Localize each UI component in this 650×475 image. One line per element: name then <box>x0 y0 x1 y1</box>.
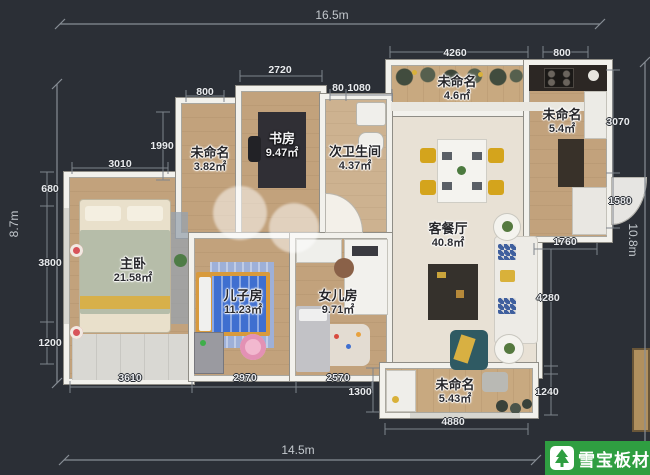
brand-logo-icon <box>550 446 574 470</box>
kitchen-cabinet <box>584 91 607 139</box>
toy-dot <box>356 332 361 337</box>
door-glow <box>213 186 267 240</box>
side-table-plant <box>504 343 515 354</box>
table-plant <box>457 166 466 175</box>
table-decor <box>437 272 446 278</box>
pillow <box>299 309 327 321</box>
dim-3070: 3070 <box>606 116 629 128</box>
fridge <box>572 187 607 235</box>
dim-1760: 1760 <box>553 236 576 248</box>
dim-4880: 4880 <box>441 416 464 428</box>
dim-2970: 2970 <box>233 372 256 384</box>
pillow <box>127 206 163 221</box>
sofa-pillow <box>498 244 516 260</box>
dim-3610: 3610 <box>118 372 141 384</box>
study-desk <box>258 112 306 188</box>
sofa-pillow <box>498 298 516 314</box>
dim-1080: 1080 <box>347 82 370 94</box>
dim-4280: 4280 <box>536 292 559 304</box>
dim-680: 680 <box>41 183 59 195</box>
pillow <box>85 206 121 221</box>
dim-3010: 3010 <box>108 158 131 170</box>
bed-throw <box>80 296 170 309</box>
pillow <box>199 277 211 331</box>
dim-800: 800 <box>196 86 214 98</box>
dim-4260: 4260 <box>443 47 466 59</box>
flower-dot <box>478 72 483 77</box>
bedside-lamp <box>70 244 83 257</box>
desk-items <box>352 246 378 256</box>
flower-dot <box>412 70 417 75</box>
dim-overall-top: 16.5m <box>315 8 348 22</box>
brand-logo-text: 雪宝板材 <box>578 446 650 471</box>
toy-dot <box>334 334 339 339</box>
plate <box>472 182 482 190</box>
dining-chair <box>488 148 504 163</box>
son-desk <box>194 332 224 374</box>
bed-son <box>212 276 266 332</box>
balcony-desk <box>386 370 416 412</box>
plate <box>442 182 452 190</box>
plate <box>472 152 482 160</box>
dim-2570: 2570 <box>326 372 349 384</box>
sofa-pillow <box>500 270 515 282</box>
dim-1580: 1580 <box>608 195 631 207</box>
cropped-cabinet <box>632 348 650 432</box>
dining-chair <box>488 180 504 195</box>
dim-3800: 3800 <box>38 257 61 269</box>
kitchen-counter-low <box>558 139 584 187</box>
brand-watermark: 雪宝板材 <box>545 441 650 475</box>
bedside-lamp <box>70 326 83 339</box>
dim-1990: 1990 <box>150 140 173 152</box>
window <box>64 208 69 324</box>
dim-1200: 1200 <box>38 337 61 349</box>
dim-800-right: 800 <box>553 47 571 59</box>
toy-dot <box>346 344 351 349</box>
balcony-chair <box>482 372 508 392</box>
plate <box>442 152 452 160</box>
door-glow <box>269 203 319 253</box>
toilet <box>358 132 384 153</box>
window <box>410 413 520 418</box>
dim-2720: 2720 <box>268 64 291 76</box>
sink <box>356 102 386 126</box>
dim-overall-right: 10.8m <box>626 223 640 256</box>
dining-chair <box>420 180 436 195</box>
dim-1240: 1240 <box>535 386 558 398</box>
pink-seat <box>240 334 266 360</box>
dim-1300: 1300 <box>348 386 371 398</box>
study-chair <box>248 136 261 162</box>
floorplan-canvas: 16.5m 8.7m 10.8m 14.5m 2720 800 1990 301… <box>0 0 650 475</box>
daughter-chair <box>334 258 354 278</box>
kitchen-sink <box>588 70 599 81</box>
side-table-plant <box>502 221 513 232</box>
dining-chair <box>420 148 436 163</box>
desk-dot <box>200 340 206 346</box>
coffee-table <box>428 264 478 320</box>
plant <box>522 399 532 409</box>
balcony-dot <box>392 396 399 403</box>
dim-overall-left: 8.7m <box>7 211 21 238</box>
table-decor <box>456 290 464 298</box>
stove <box>544 68 574 88</box>
plant <box>496 400 508 412</box>
dim-overall-bottom: 14.5m <box>281 443 314 457</box>
plant <box>174 254 187 267</box>
dim-80: 80 <box>332 82 344 94</box>
balcony-sill <box>391 102 607 111</box>
